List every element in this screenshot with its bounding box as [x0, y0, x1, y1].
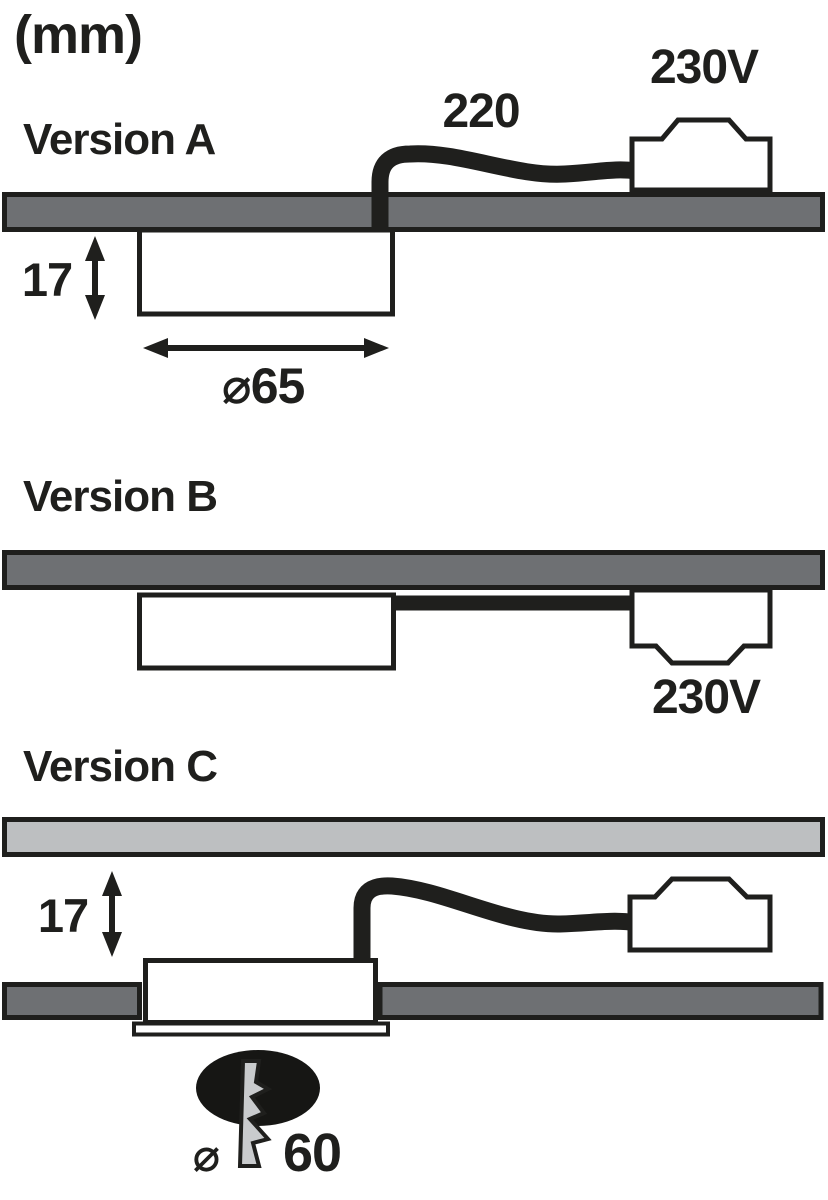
- voltage-label-b: 230V: [640, 674, 772, 722]
- cable-length-label-a: 220: [426, 88, 536, 136]
- mounting-panel-a: [5, 195, 823, 230]
- version-b-drawing: [5, 553, 823, 669]
- mounting-panel-c-right: [380, 985, 821, 1018]
- luminaire-housing-a: [140, 230, 393, 314]
- luminaire-housing-b: [140, 595, 394, 668]
- depth-label-a: 17: [14, 256, 80, 303]
- depth-dimension-arrow-a: [85, 236, 105, 320]
- dimension-diagram: (mm) Version A 220 230V 17 ⌀65 Version B…: [0, 0, 828, 1200]
- clearance-dimension-arrow-c: [102, 871, 122, 957]
- version-b-title: Version B: [23, 475, 217, 519]
- mounting-panel-c-left: [5, 985, 140, 1018]
- power-cable-c: [362, 886, 638, 962]
- mains-connector-a: [632, 120, 770, 190]
- furniture-panel-c-top: [5, 820, 823, 855]
- diameter-dimension-arrow-a: [143, 338, 389, 358]
- drill-diameter-value: 60: [276, 1126, 348, 1180]
- diagram-linework: [0, 0, 828, 1200]
- version-c-drawing: [5, 820, 823, 1167]
- mounting-panel-b: [5, 553, 823, 588]
- clearance-label-c: 17: [30, 892, 96, 939]
- version-a-title: Version A: [23, 118, 215, 162]
- voltage-label-a: 230V: [638, 44, 770, 92]
- luminaire-flange-c: [134, 1024, 388, 1035]
- version-c-title: Version C: [23, 745, 217, 789]
- unit-label: (mm): [14, 8, 142, 62]
- drill-diameter-symbol: ⌀: [182, 1132, 230, 1178]
- mains-connector-b: [632, 590, 770, 663]
- diameter-label-a: ⌀65: [193, 361, 333, 411]
- mains-connector-c: [630, 879, 770, 950]
- luminaire-housing-c: [146, 961, 376, 1023]
